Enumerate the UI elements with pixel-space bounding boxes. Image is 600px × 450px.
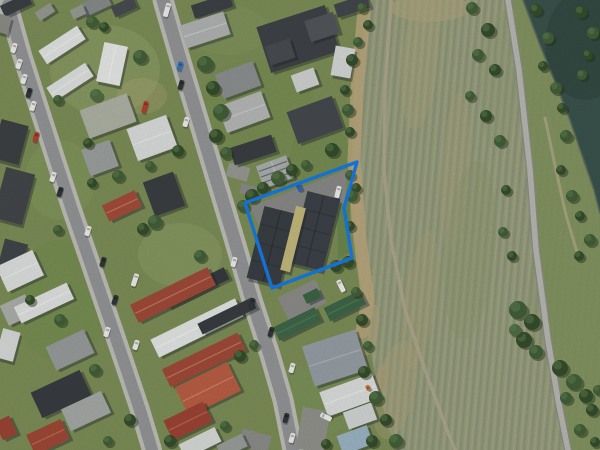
photo-grain-overlay [0,0,600,450]
aerial-map-viewport[interactable] [0,0,600,450]
aerial-map-svg [0,0,600,450]
